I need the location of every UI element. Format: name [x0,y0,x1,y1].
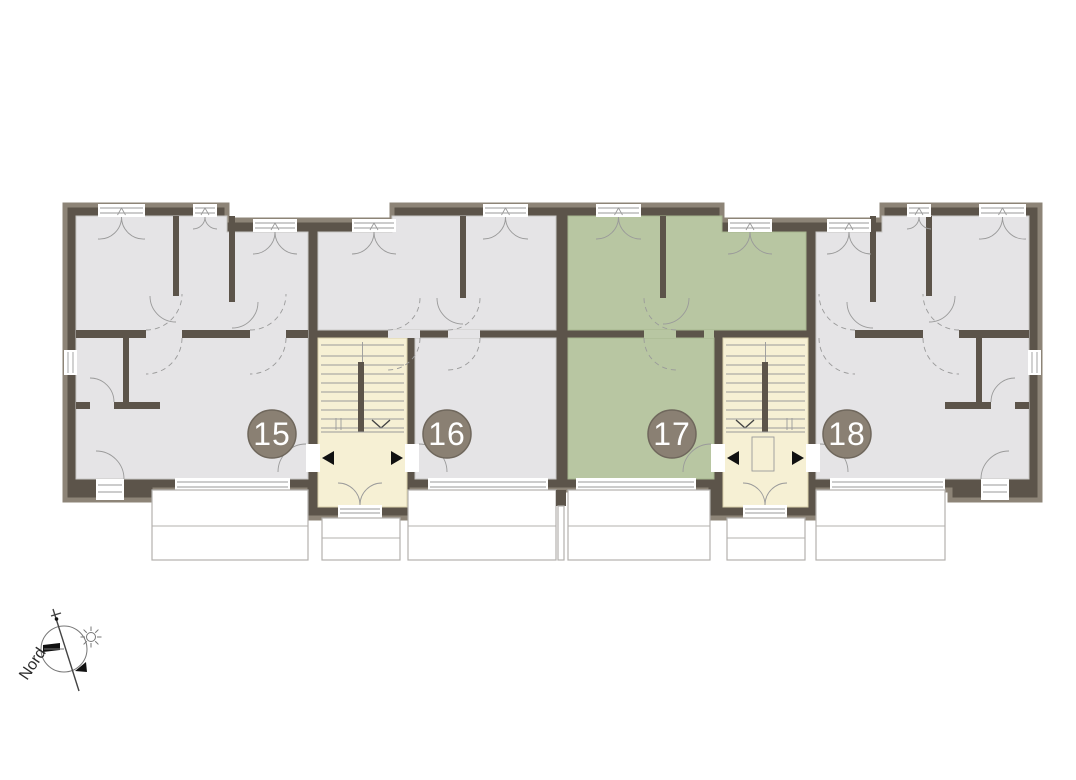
window [596,204,641,217]
sun-ray [84,630,87,633]
terrace-18 [816,490,945,560]
unit-badge-15[interactable]: 15 [248,410,296,458]
entrance-porch-a [322,518,400,560]
window [193,204,217,217]
north-compass: Nord [16,609,101,691]
window [98,204,145,217]
window [827,219,871,232]
sun-ray [95,630,98,633]
building [64,204,1041,518]
entrance-porch-b [727,518,805,560]
window [352,219,396,232]
stair-b-divider [762,362,768,432]
unit-badge-15-label: 15 [253,416,291,452]
stair-a-divider [358,362,364,432]
window [483,204,528,217]
unit-badge-16-label: 16 [428,416,466,452]
terrace-window [175,478,290,491]
terrace-window [428,478,548,491]
window [907,204,931,217]
party-wall-fence [558,506,564,560]
window [253,219,297,232]
party-wall-stub [556,490,566,506]
unit-17-area-lower[interactable] [568,338,714,479]
unit-16-area-upper[interactable] [318,216,556,330]
terraces [152,490,945,560]
unit-badge-17-label: 17 [653,416,691,452]
floor-plan-page: 15 16 17 18 Nord [0,0,1076,780]
unit-16-area-lower[interactable] [415,338,556,479]
floor-plan-svg: 15 16 17 18 Nord [0,0,1076,780]
unit-badge-18-label: 18 [828,416,866,452]
window [728,219,772,232]
unit-17-area-upper[interactable] [568,216,806,330]
unit-badge-18[interactable]: 18 [823,410,871,458]
terrace-16 [408,490,556,560]
unit-badge-17[interactable]: 17 [648,410,696,458]
terrace-17 [568,490,710,560]
terrace-window [830,478,945,491]
window [979,204,1026,217]
unit-badge-16[interactable]: 16 [423,410,471,458]
terrace-window [576,478,696,491]
terrace-15 [152,490,308,560]
sun-icon [81,627,102,648]
sun-ray [95,641,98,644]
